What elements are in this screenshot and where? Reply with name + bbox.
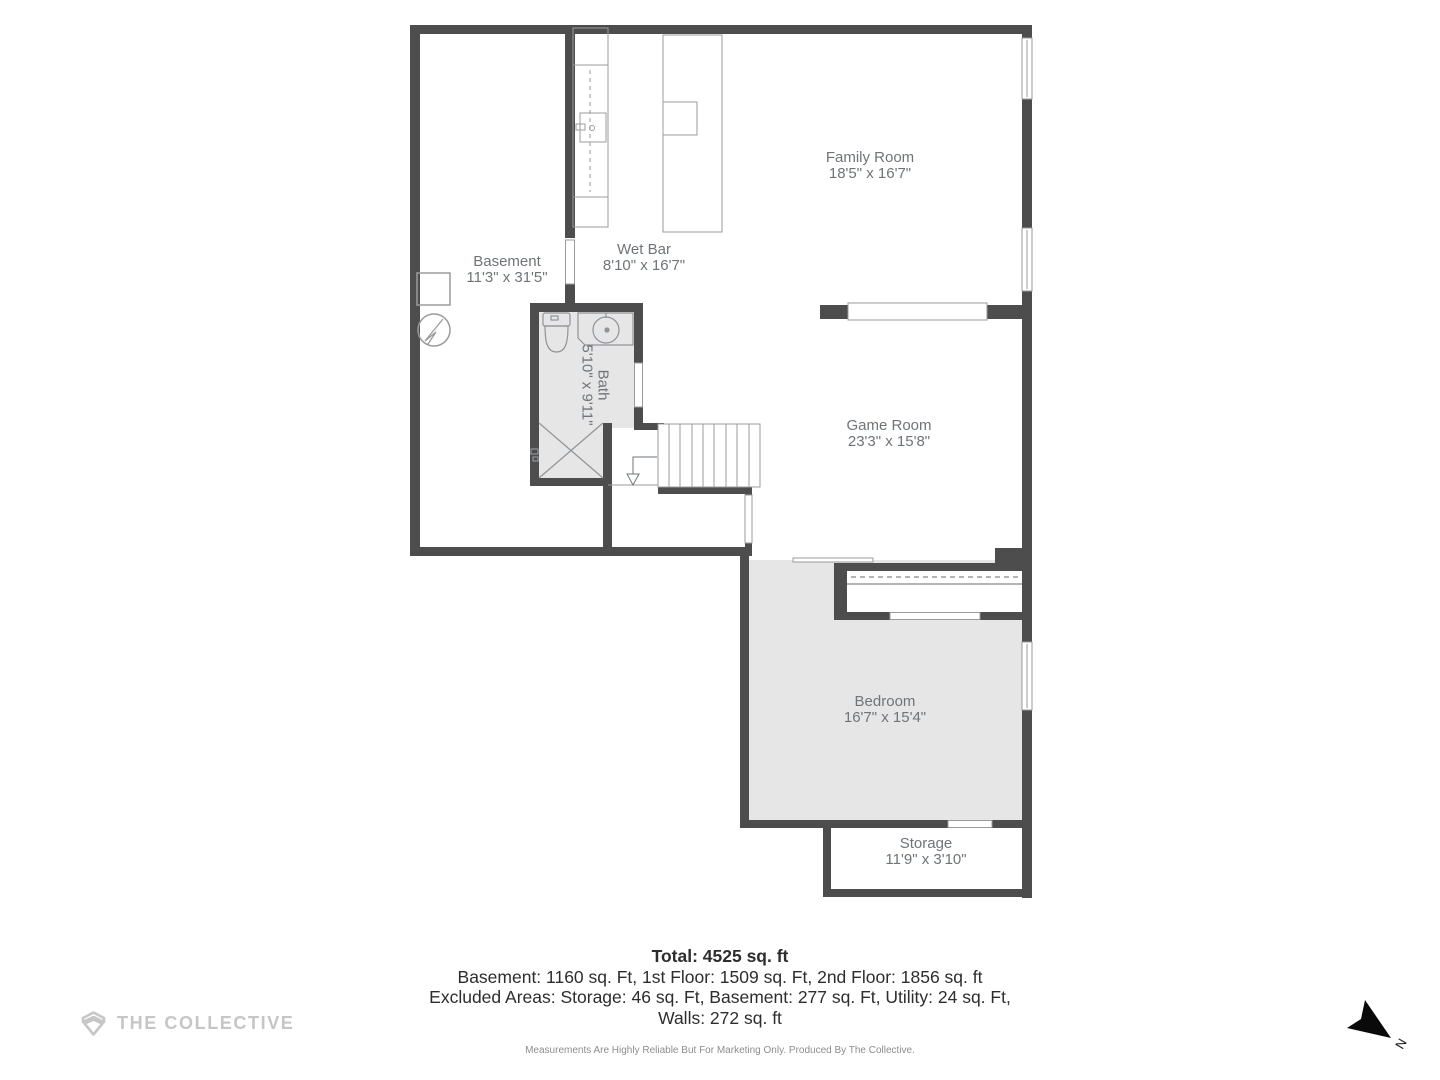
floor-plan-drawing: N [0, 0, 1440, 1080]
room-name: Game Room [846, 417, 931, 434]
room-dims: 18'5" x 16'7" [826, 166, 914, 182]
low-wall-line [793, 558, 873, 562]
room-label-game-room: Game Room 23'3" x 15'8" [846, 418, 931, 449]
floor-plan-page: N Basement 11'3" x 31'5" Wet Bar 8'10" x… [0, 0, 1440, 1080]
room-label-bedroom: Bedroom 16'7" x 15'4" [844, 694, 926, 725]
stair-direction-arrow [627, 474, 639, 485]
room-name: Bedroom [855, 693, 916, 710]
stair-direction-line [633, 457, 657, 474]
window-well [845, 567, 1022, 616]
room-name: Storage [900, 835, 953, 852]
room-name: Family Room [826, 149, 914, 166]
room-name: Bath [595, 370, 612, 401]
bedroom-bottom-window [948, 821, 992, 828]
basement-symbols [417, 273, 450, 346]
room-dims: 11'9" x 3'10" [885, 852, 966, 868]
basement-door-opening [566, 240, 575, 284]
wet-bar-counters [573, 28, 722, 232]
room-label-family-room: Family Room 18'5" x 16'7" [826, 150, 914, 181]
room-dims: 16'7" x 15'4" [844, 710, 926, 726]
room-dims: 8'10" x 16'7" [603, 258, 685, 274]
bath-door-opening [635, 363, 643, 407]
bedroom-well-window [890, 613, 980, 620]
vanity-faucet [605, 328, 609, 332]
excluded-areas: Excluded Areas: Storage: 46 sq. Ft, Base… [0, 987, 1440, 1008]
floor-areas: Basement: 1160 sq. Ft, 1st Floor: 1509 s… [0, 967, 1440, 988]
room-name: Basement [473, 253, 541, 270]
staircase [608, 424, 760, 487]
total-area: Total: 4525 sq. ft [0, 946, 1440, 967]
room-name: Wet Bar [617, 241, 671, 258]
wet-bar-sink [580, 113, 606, 142]
logo-icon [80, 1010, 107, 1037]
hall-door-opening [745, 495, 752, 543]
utility-box [417, 273, 450, 305]
game-room-cased-opening [848, 303, 987, 320]
room-label-storage: Storage 11'9" x 3'10" [885, 836, 966, 867]
room-dims: 5'10" x 9'11" [580, 344, 596, 425]
room-label-bath: Bath 5'10" x 9'11" [580, 344, 611, 425]
brand-name: THE COLLECTIVE [117, 1013, 294, 1034]
brand-logo: THE COLLECTIVE [80, 1010, 294, 1037]
disclaimer-text: Measurements Are Highly Reliable But For… [0, 1045, 1440, 1056]
stair-outline [658, 424, 760, 487]
room-dims: 23'3" x 15'8" [846, 434, 931, 450]
wet-bar-island [663, 35, 722, 232]
room-label-wet-bar: Wet Bar 8'10" x 16'7" [603, 242, 685, 273]
water-heater-bolt [425, 319, 443, 344]
room-dims: 11'3" x 31'5" [466, 270, 547, 286]
room-label-basement: Basement 11'3" x 31'5" [466, 254, 547, 285]
